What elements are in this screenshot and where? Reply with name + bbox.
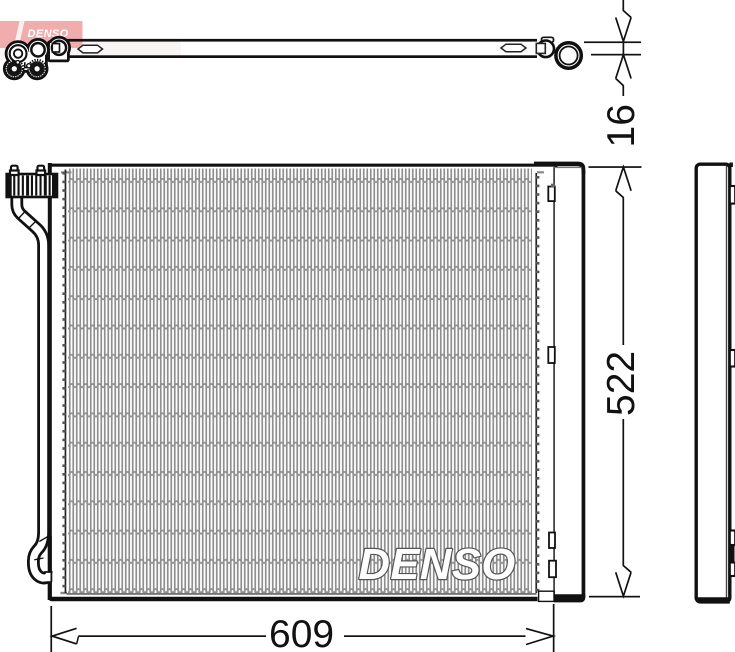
svg-text:16: 16	[600, 104, 643, 147]
svg-text:DENSO: DENSO	[359, 541, 516, 589]
svg-text:522: 522	[600, 351, 643, 416]
svg-text:609: 609	[269, 613, 334, 652]
